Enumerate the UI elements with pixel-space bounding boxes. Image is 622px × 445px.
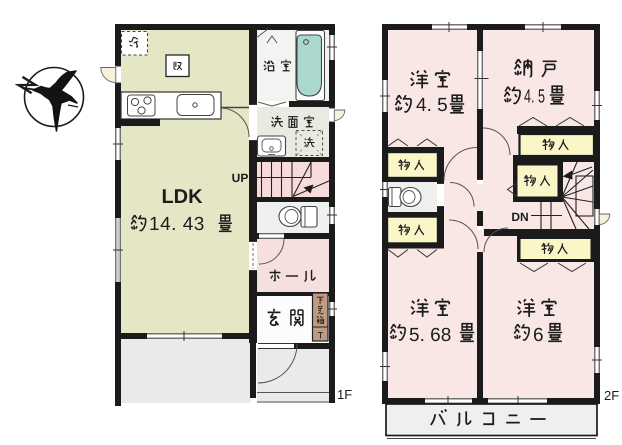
svg-text:T: T: [318, 331, 324, 341]
svg-text:2F: 2F: [604, 388, 619, 403]
svg-text:4. 5: 4. 5: [416, 95, 448, 116]
svg-text:DN: DN: [511, 210, 528, 224]
svg-text:4. 5: 4. 5: [524, 87, 545, 108]
svg-text:1F: 1F: [337, 387, 352, 402]
svg-text:UP: UP: [232, 171, 249, 185]
svg-text:5. 68: 5. 68: [409, 325, 451, 346]
svg-text:6: 6: [533, 325, 544, 346]
svg-text:LDK: LDK: [161, 186, 203, 208]
svg-text:14. 43: 14. 43: [149, 214, 205, 235]
